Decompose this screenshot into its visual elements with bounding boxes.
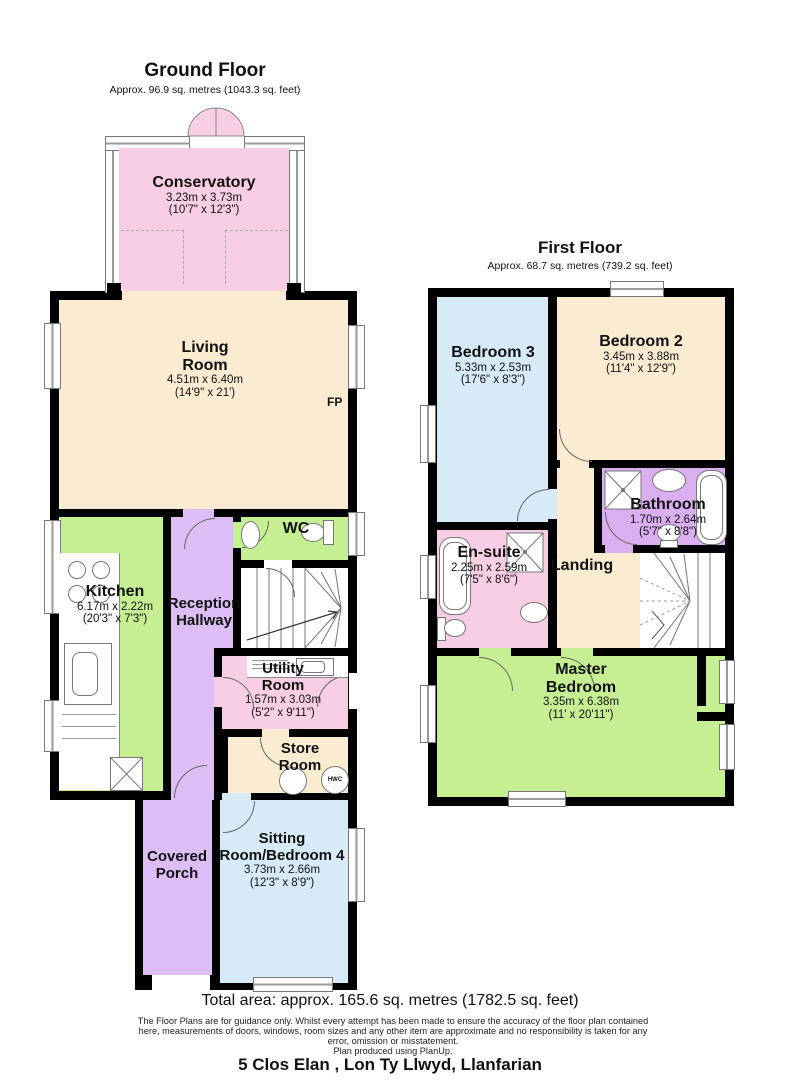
room-label-conservatory: Conservatory 3.23m x 3.73m (10'7" x 12'3… [138,174,270,217]
sink-icon [241,521,260,549]
counter-line [62,726,116,727]
conservatory-roof-dashline [121,230,184,284]
door-opening-back-door [349,673,357,709]
property-address: 5 Clos Elan , Lon Ty Llwyd, Llanfarian [60,1055,720,1075]
room-label-hallway: Reception Hallway [158,596,250,629]
room-label-store: Store Room [266,741,334,774]
ff-room-bedroom3 [437,297,548,522]
room-label-sitting: Sitting Room/Bedroom 4 3.73m x 2.66m (12… [215,831,349,889]
hob-icon [92,561,110,579]
door-opening [222,793,251,800]
room-label-bedroom3: Bedroom 3 5.33m x 2.53m (17'6" x 8'3") [440,344,546,387]
fireplace-label: FP [327,395,342,409]
window [348,828,365,902]
gf-stairs-icon [241,568,348,648]
room-label-kitchen: Kitchen 6.17m x 2.22m (20'3" x 7'3") [60,583,170,626]
door-opening [605,545,633,553]
conservatory-glazed-wall-right [289,136,305,293]
door-opening [262,729,289,737]
toilet-cistern [323,520,334,545]
door-opening [264,560,292,568]
counter-line [62,714,116,715]
ground-floor-title: Ground Floor Approx. 96.9 sq. metres (10… [85,60,325,96]
conservatory-french-doors-icon [186,103,246,137]
conservatory-roof-dashline [225,230,288,284]
room-label-master: Master Bedroom 3.35m x 6.38m (11' x 20'1… [532,661,630,721]
window [719,660,735,704]
disclaimer: The Floor Plans are for guidance only. W… [40,1016,746,1056]
window [508,791,566,807]
room-label-ensuite: En-suite 2.25m x 2.59m (7'5" x 8'6") [436,544,542,587]
gf-room-living [59,300,348,509]
gf-porch-open-edge [152,975,210,990]
door-opening [479,648,511,656]
window [348,512,365,556]
appliance-icon [110,757,143,791]
first-floor-area-text: Approx. 68.7 sq. metres (739.2 sq. feet) [460,260,700,272]
room-label-utility: Utility Room 1.57m x 3.03m (5'2" x 9'11"… [233,661,333,719]
wall-stub [697,712,734,721]
door-opening [183,509,214,517]
wall-stub [107,283,121,299]
wall-stub [697,656,706,706]
first-floor-title-text: First Floor [460,238,700,258]
ff-landing-corridor [557,468,594,553]
sink-icon [652,469,686,492]
room-label-porch: Covered Porch [140,849,214,882]
door-opening [561,648,593,656]
door-opening [214,677,222,707]
room-label-landing: Landing [542,557,622,575]
window [253,977,333,992]
sink-icon [520,602,548,623]
window [610,281,664,297]
window [420,555,436,599]
room-label-bathroom: Bathroom 1.70m x 2.64m (5'7" x 8'8") [607,496,729,539]
door-opening [548,489,557,519]
gf-opening-conservatory [122,291,286,300]
disclaimer-line: The Floor Plans are for guidance only. W… [40,1016,746,1026]
counter-line [62,738,116,739]
first-floor-title: First Floor Approx. 68.7 sq. metres (739… [460,238,700,272]
floorplan-page: Ground Floor Approx. 96.9 sq. metres (10… [0,0,785,1080]
room-label-wc: WC [272,520,320,538]
window [348,325,365,389]
toilet-icon [444,619,466,637]
door-opening [233,522,241,548]
total-area-text: Total area: approx. 165.6 sq. metres (17… [60,992,720,1010]
ff-stairs-icon [640,553,725,648]
hob-icon [68,561,86,579]
window [420,405,436,463]
gf-room-porch [143,800,212,975]
room-label-bedroom2: Bedroom 2 3.45m x 3.88m (11'4" x 12'9") [586,333,696,376]
wall-stub [287,283,301,299]
kitchen-sink-basin [72,652,98,696]
ground-floor-title-text: Ground Floor [85,60,325,82]
window [44,323,61,389]
disclaimer-line: here, measurements of doors, windows, ro… [40,1026,746,1036]
window [420,685,436,743]
disclaimer-line: error, omission or misstatement. [40,1036,746,1046]
ground-floor-area-text: Approx. 96.9 sq. metres (1043.3 sq. feet… [85,84,325,96]
room-label-living: Living Room 4.51m x 6.40m (14'9" x 21') [145,339,265,399]
toilet-cistern [660,540,678,548]
window [719,724,735,770]
